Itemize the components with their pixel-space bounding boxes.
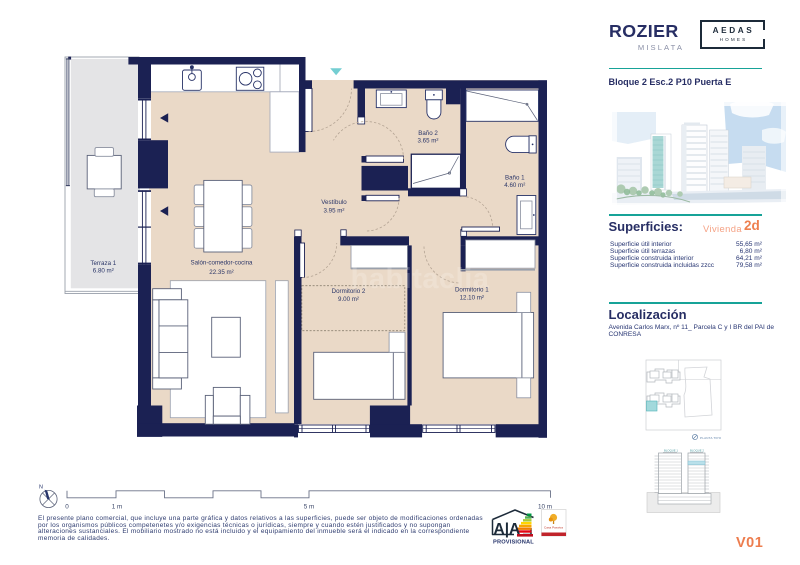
svg-text:Vestíbulo: Vestíbulo [321, 199, 347, 206]
svg-text:12.10 m²: 12.10 m² [460, 294, 484, 301]
svg-text:A|A: A|A [494, 521, 521, 538]
svg-text:PLANTA TIPO: PLANTA TIPO [700, 436, 722, 440]
svg-text:1 m: 1 m [112, 504, 123, 511]
svg-text:6.80 m²: 6.80 m² [93, 268, 114, 275]
svg-text:Baño 2: Baño 2 [418, 130, 438, 137]
svg-text:Baño 1: Baño 1 [505, 174, 525, 181]
svg-text:Dormitorio 1: Dormitorio 1 [455, 287, 489, 294]
svg-text:Dormitorio 2: Dormitorio 2 [332, 288, 366, 295]
svg-text:N: N [39, 485, 43, 491]
svg-text:9.00 m²: 9.00 m² [338, 296, 359, 303]
svg-text:3.65 m²: 3.65 m² [418, 138, 439, 145]
svg-text:22.35 m²: 22.35 m² [209, 269, 233, 276]
svg-text:3.95 m²: 3.95 m² [324, 207, 345, 214]
svg-text:Casa Passiva: Casa Passiva [544, 526, 563, 530]
svg-text:BLOQUE 1: BLOQUE 1 [664, 449, 678, 453]
svg-text:PROVISIONAL: PROVISIONAL [493, 540, 534, 546]
svg-text:5 m: 5 m [304, 504, 315, 511]
svg-text:4.60 m²: 4.60 m² [504, 182, 525, 189]
svg-text:Terraza 1: Terraza 1 [90, 260, 116, 267]
svg-text:Salón-comedor-cocina: Salón-comedor-cocina [191, 260, 253, 267]
svg-text:BLOQUE 2: BLOQUE 2 [690, 449, 704, 453]
svg-text:0: 0 [65, 504, 69, 511]
